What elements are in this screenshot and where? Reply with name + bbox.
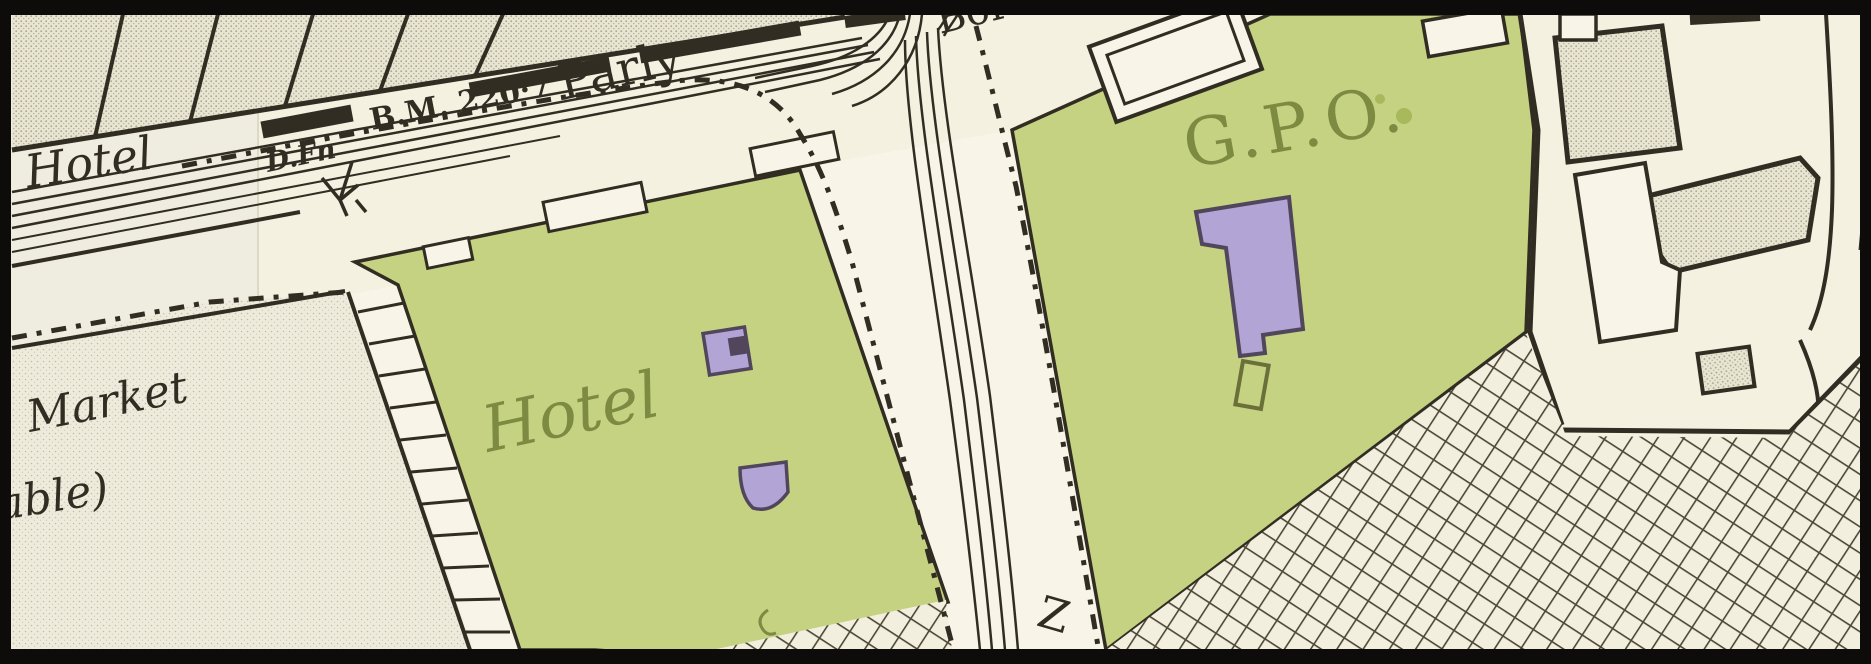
right-building-yard: [1560, 14, 1596, 40]
hotel-inner-building-notch: [728, 336, 748, 356]
right-building-d: [1697, 347, 1754, 394]
right-building-a: [1555, 26, 1680, 162]
historic-town-plan: Hotel B.M. 220·7 D.Fn Parly Boro Market …: [0, 0, 1871, 664]
historic-map-canvas[interactable]: Hotel B.M. 220·7 D.Fn Parly Boro Market …: [0, 0, 1871, 664]
hotel-inner-structure-2: [740, 462, 788, 509]
